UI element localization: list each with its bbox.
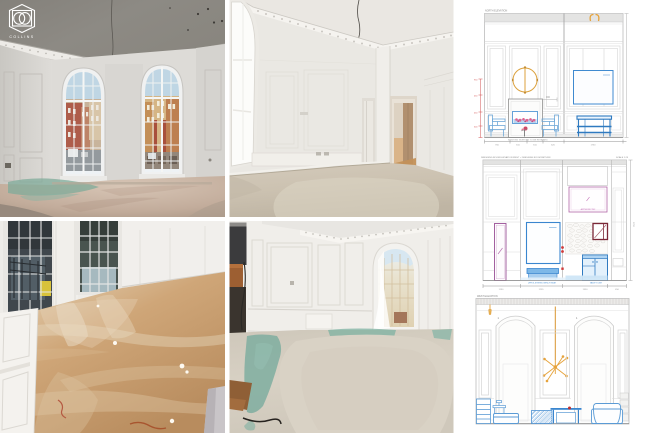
svg-text:1130: 1130	[499, 289, 504, 291]
svg-text:UPHOLSTERED BENCH SEAT: UPHOLSTERED BENCH SEAT	[528, 281, 557, 284]
svg-text:450: 450	[474, 113, 478, 115]
svg-text:760: 760	[495, 145, 499, 147]
svg-text:510: 510	[533, 145, 537, 147]
svg-text:DRESSING ROOM ELEVATION WEST +: DRESSING ROOM ELEVATION WEST + DRESSING …	[481, 156, 551, 159]
svg-text:1255: 1255	[539, 289, 545, 291]
svg-text:1350: 1350	[583, 289, 589, 291]
svg-text:620: 620	[551, 145, 555, 147]
svg-text:NORTH ELEVATION: NORTH ELEVATION	[485, 10, 507, 13]
svg-text:VANITY UNIT: VANITY UNIT	[590, 281, 603, 284]
svg-text:ARTWORK TBC: ARTWORK TBC	[581, 208, 596, 211]
svg-text:510: 510	[516, 145, 520, 147]
svg-text:COLLINS: COLLINS	[9, 35, 34, 39]
svg-text:300: 300	[474, 127, 478, 129]
svg-text:WEST ELEVATION: WEST ELEVATION	[477, 295, 498, 298]
svg-text:450: 450	[615, 289, 619, 291]
svg-text:1760: 1760	[591, 145, 597, 147]
svg-text:2700: 2700	[632, 222, 634, 228]
svg-text:EXISTING SKIRTING TO BE RETAIN: EXISTING SKIRTING TO BE RETAINED	[508, 139, 548, 142]
svg-text:900: 900	[546, 96, 551, 99]
svg-text:SCALE 1:25: SCALE 1:25	[616, 156, 629, 159]
svg-text:950: 950	[474, 80, 478, 82]
svg-text:450: 450	[474, 96, 478, 98]
